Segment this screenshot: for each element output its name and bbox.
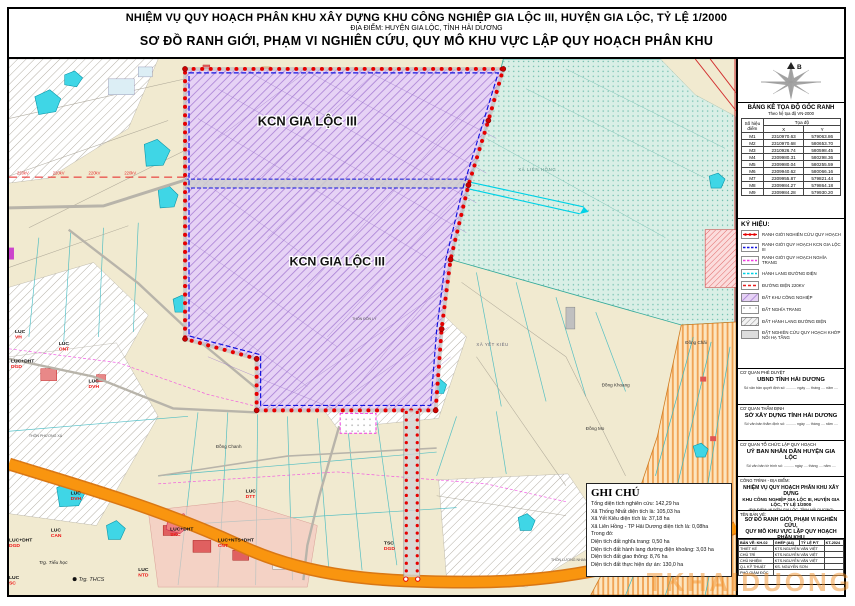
map-canvas: 220kV 220kV 220kV 220kV KCN GIA LỘC III … bbox=[9, 59, 736, 595]
legend-swatch-cyan-dash bbox=[741, 269, 759, 278]
notes-box: GHI CHÚ Tổng diện tích nghiên cứu: 142,2… bbox=[586, 483, 732, 577]
kcn-label-bottom: KCN GIA LỘC III bbox=[289, 253, 384, 268]
note-line: Trong đó: bbox=[591, 531, 727, 539]
notes-title: GHI CHÚ bbox=[591, 487, 727, 499]
legend-swatch-blue-dash bbox=[741, 243, 759, 252]
north-label: B bbox=[797, 64, 802, 71]
note-line: Xã Yết Kiêu diện tích là: 37,18 ha bbox=[591, 516, 727, 524]
label-phuong-xa: THÔN PHƯƠNG XÁ bbox=[29, 433, 63, 438]
svg-text:LUCONT: LUCONT bbox=[59, 341, 70, 352]
legend-item: ĐẤT KHU CÔNG NGHIỆP bbox=[741, 293, 841, 302]
note-line: Diện tích đất giao thông: 8,76 ha bbox=[591, 554, 727, 562]
power-label-1: 220kV bbox=[17, 171, 29, 176]
personnel-table: BẢN VẼ: KH-02 GHÉP (A4) TỶ LỆ P/T KT-202… bbox=[738, 539, 844, 576]
legend-item: RANH GIỚI QUY HOẠCH NGHĨA TRANG bbox=[741, 255, 841, 265]
svg-text:LUCDTT: LUCDTT bbox=[246, 489, 257, 500]
label-thcs: Trg. THCS bbox=[79, 577, 105, 583]
legend-item: ĐẤT NGHIÊN CỨU QUY HOẠCH KHỚP NỐI HẠ TẦN… bbox=[741, 330, 841, 340]
label-lien-hong: XÃ LIÊN HỒNG bbox=[518, 167, 556, 172]
note-line: Xã Liên Hồng - TP Hải Dương diện tích là… bbox=[591, 524, 727, 532]
table-row: M92309984.28579930.20 bbox=[742, 189, 841, 196]
sheet-frame: NHIỆM VỤ QUY HOẠCH PHÂN KHU XÂY DỰNG KHU… bbox=[7, 7, 846, 597]
label-tieu-hoc: Trg. Tiểu học bbox=[39, 559, 68, 566]
south-boundary bbox=[404, 410, 420, 581]
legend-box: KÝ HIỆU: RANH GIỚI NGHIÊN CỨU QUY HOẠCH … bbox=[738, 219, 844, 369]
sheet-title-line1: NHIỆM VỤ QUY HOẠCH PHÂN KHU XÂY DỰNG KHU… bbox=[9, 12, 844, 24]
note-line: Diện tích đất nghĩa trang: 0,50 ha bbox=[591, 539, 727, 547]
label-dong-chai: Đồng Chãi bbox=[685, 340, 707, 345]
legend-swatch-red-dash bbox=[741, 281, 759, 290]
note-line: Xã Thống Nhất diện tích là: 105,03 ha bbox=[591, 509, 727, 517]
legend-swatch-infrastructure bbox=[741, 330, 759, 339]
legend-item: RANH GIỚI NGHIÊN CỨU QUY HOẠCH bbox=[741, 230, 841, 239]
note-line: Diện tích đất thực hiện dự án: 130,0 ha bbox=[591, 562, 727, 570]
legend-swatch-red-dots-line bbox=[741, 230, 759, 239]
power-label-2: 220kV bbox=[53, 171, 65, 176]
col-point: Số hiệu điểm bbox=[742, 119, 764, 133]
coordinate-table-box: BẢNG KÊ TỌA ĐỘ GỐC RANH Theo hệ tọa độ V… bbox=[738, 103, 844, 219]
legend-item: ĐƯỜNG ĐIỆN 220KV bbox=[741, 281, 841, 290]
label-dong-khoang: Đồng Khoang bbox=[602, 383, 630, 388]
label-yet-kieu: XÃ YẾT KIÊU bbox=[476, 342, 508, 347]
table-row: M52309980.04580255.59 bbox=[742, 161, 841, 168]
legend-swatch-corridor bbox=[741, 317, 759, 326]
table-row: M42309980.31580298.36 bbox=[742, 154, 841, 161]
svg-text:LUCDVH: LUCDVH bbox=[71, 491, 82, 502]
sheet-title-line2: ĐỊA ĐIỂM: HUYỆN GIA LỘC, TỈNH HẢI DƯƠNG bbox=[9, 25, 844, 32]
kcn-label-top: KCN GIA LỘC III bbox=[258, 114, 357, 129]
label-don-ly: THÔN ĐÔN LÝ bbox=[352, 316, 377, 321]
legend-title: KÝ HIỆU: bbox=[741, 221, 841, 228]
svg-text:TSCDGD: TSCDGD bbox=[384, 540, 395, 551]
power-label-3: 220kV bbox=[89, 171, 101, 176]
col-coord: Tọa độ bbox=[763, 119, 840, 126]
table-row: M72309955.87579821.44 bbox=[742, 175, 841, 182]
note-line: Diện tích đất hành lang đường điện khoản… bbox=[591, 547, 727, 555]
table-row: M22310970.68580653.70 bbox=[742, 140, 841, 147]
approval-block-sxd: CƠ QUAN THẨM ĐỊNH SỞ XÂY DỰNG TỈNH HẢI D… bbox=[738, 405, 844, 441]
legend-swatch-industrial bbox=[741, 293, 759, 302]
power-label-4: 220kV bbox=[124, 171, 136, 176]
personnel-table-block: BẢN VẼ: KH-02 GHÉP (A4) TỶ LỆ P/T KT-202… bbox=[738, 539, 844, 585]
approval-block-ubnd: CƠ QUAN PHÊ DUYỆT UBND TỈNH HẢI DƯƠNG Số… bbox=[738, 369, 844, 405]
table-row: M62309940.62580066.16 bbox=[742, 168, 841, 175]
cemetery-area bbox=[340, 413, 376, 433]
coordinate-table: Số hiệu điểm Tọa độ X Y M12310970.635790… bbox=[741, 118, 841, 196]
approval-block-huyen: CƠ QUAN TỔ CHỨC LẬP QUY HOẠCH UỶ BAN NHÂ… bbox=[738, 441, 844, 477]
plan-sheet: NHIỆM VỤ QUY HOẠCH PHÂN KHU XÂY DỰNG KHU… bbox=[0, 0, 855, 606]
note-line: Tổng diện tích nghiên cứu: 142,29 ha bbox=[591, 501, 727, 509]
label-dong-chanh: Đồng Chanh bbox=[216, 444, 242, 449]
coordinate-table-subtitle: Theo hệ tọa độ VN-2000 bbox=[741, 111, 841, 116]
table-row: M12310970.63579063.86 bbox=[742, 133, 841, 140]
sidebar: B BẢNG KÊ TỌA ĐỘ GỐC RANH Theo hệ tọa độ… bbox=[736, 59, 844, 595]
legend-item: RANH GIỚI QUY HOẠCH KCN GIA LỘC III bbox=[741, 242, 841, 252]
drawing-name-block: TÊN BẢN VẼ: SƠ ĐỒ RANH GIỚI, PHẠM VI NGH… bbox=[738, 511, 844, 539]
legend-swatch-magenta-dash bbox=[741, 256, 759, 265]
table-row: PHÓ GIÁM ĐỐC bbox=[739, 570, 844, 576]
svg-text:LUCNTD: LUCNTD bbox=[138, 567, 149, 578]
title-block: NHIỆM VỤ QUY HOẠCH PHÂN KHU XÂY DỰNG KHU… bbox=[9, 9, 844, 59]
label-dong-mo: Đồng Mo bbox=[586, 426, 605, 431]
col-x: X bbox=[763, 126, 804, 133]
compass-rose-icon: B bbox=[739, 60, 843, 102]
table-row: M82309984.27579864.18 bbox=[742, 182, 841, 189]
svg-text:LUCDVH: LUCDVH bbox=[89, 379, 100, 390]
svg-text:LUCCAN: LUCCAN bbox=[51, 527, 62, 538]
legend-item: ĐẤT NGHĨA TRANG bbox=[741, 305, 841, 314]
compass-box: B bbox=[738, 59, 844, 103]
col-y: Y bbox=[804, 126, 841, 133]
legend-item: ĐẤT HÀNH LANG ĐƯỜNG ĐIỆN bbox=[741, 317, 841, 326]
legend-swatch-cemetery bbox=[741, 305, 759, 314]
power-corridor-band bbox=[185, 179, 469, 188]
legend-item: HÀNH LANG ĐƯỜNG ĐIỆN bbox=[741, 269, 841, 278]
table-row: M32310926.74580598.45 bbox=[742, 147, 841, 154]
label-luong-nhan: THÔN LƯƠNG NHAN bbox=[551, 557, 587, 562]
project-block: CÔNG TRÌNH - ĐỊA ĐIỂM: NHIỆM VỤ QUY HOẠC… bbox=[738, 477, 844, 511]
red-hatch-parcel bbox=[705, 230, 736, 288]
sheet-title-line3: SƠ ĐỒ RANH GIỚI, PHẠM VI NGHIÊN CỨU, QUY… bbox=[9, 34, 844, 48]
